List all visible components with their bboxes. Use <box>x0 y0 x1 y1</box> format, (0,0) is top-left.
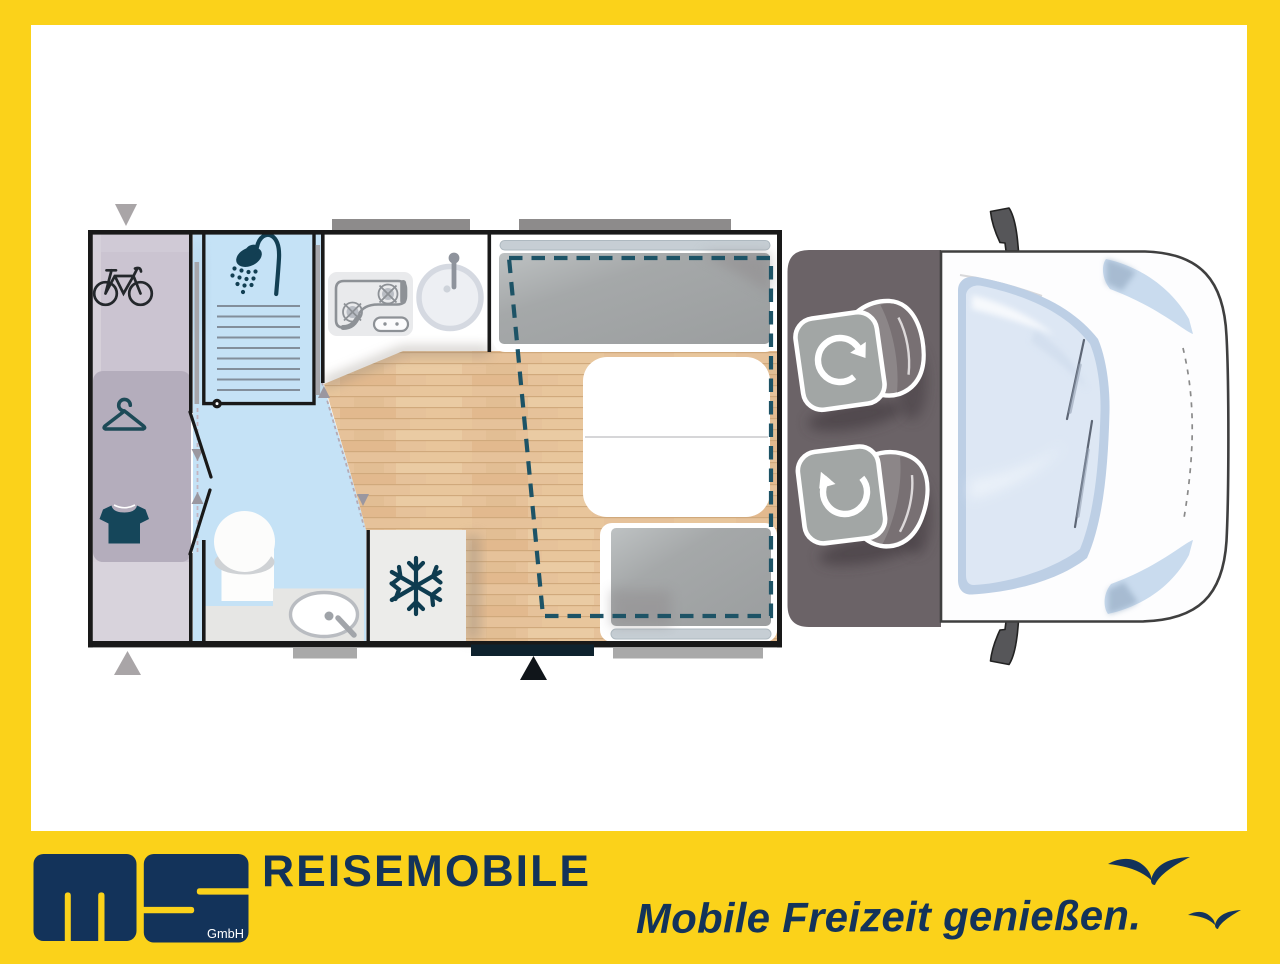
svg-text:REISEMOBILE: REISEMOBILE <box>262 847 589 896</box>
svg-text:GmbH: GmbH <box>207 926 244 941</box>
svg-text:Mobile Freizeit genießen.: Mobile Freizeit genießen. <box>636 891 1141 942</box>
